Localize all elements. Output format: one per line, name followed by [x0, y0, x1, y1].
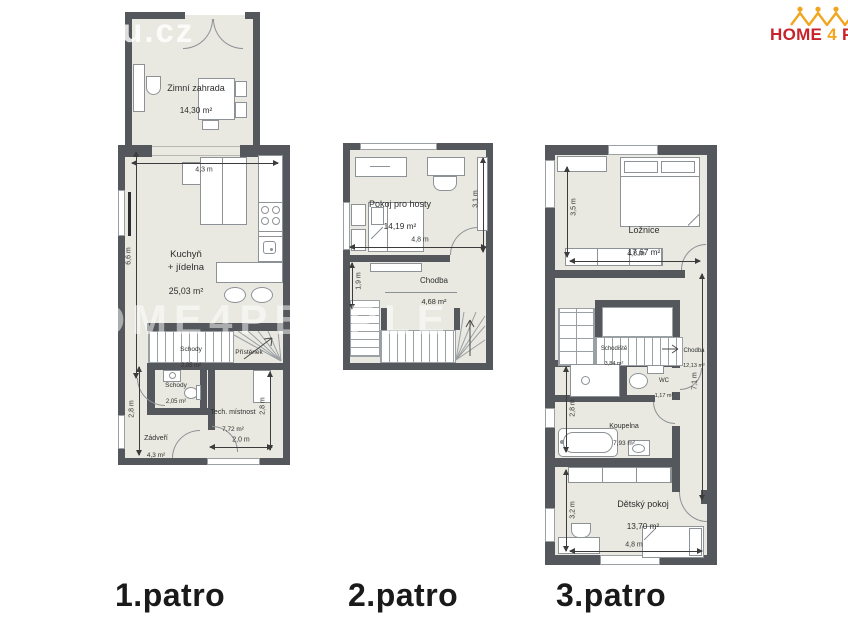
room-area: 1,17 m² — [655, 393, 674, 400]
toilet-tank — [196, 385, 201, 400]
floor-label-2: 2.patro — [348, 577, 458, 614]
dimension-line — [702, 274, 703, 500]
logo-home: HOME — [770, 25, 822, 44]
dimension-label: 3,1 m — [473, 190, 480, 208]
room-area: 14,19 m² — [369, 222, 431, 233]
wall — [125, 12, 132, 147]
room-label-wc: WC 1,17 m² — [655, 370, 674, 408]
burner — [272, 217, 280, 225]
dimension-line — [352, 263, 353, 309]
room-name: Ložnice — [628, 225, 661, 237]
room-name: Přístěnek — [235, 349, 262, 357]
room-label-kuchyn: Kuchyň + jídelna 25,03 m² — [168, 237, 204, 310]
dimension-label: 1,9 m — [356, 272, 363, 290]
wall — [595, 300, 680, 307]
dresser-handle — [370, 166, 390, 167]
window — [608, 145, 658, 155]
wall — [245, 12, 260, 19]
room-name: WC — [655, 378, 674, 386]
window — [118, 190, 125, 236]
chair — [146, 76, 161, 95]
room-name: Koupelna — [609, 422, 639, 431]
room-name: Schody — [165, 382, 187, 390]
window — [360, 143, 437, 150]
dimension-line — [570, 551, 702, 552]
room-area: 7,93 m² — [609, 440, 639, 448]
burner — [261, 206, 269, 214]
wall — [381, 308, 387, 330]
room-area: 12,13 m² — [683, 363, 705, 370]
room-area: 2,05 m² — [180, 363, 202, 371]
room-name: Zimní zahrada — [167, 83, 225, 95]
room-area: 3,84 m² — [601, 361, 627, 368]
blanket-line — [620, 176, 700, 177]
wardrobe — [568, 467, 672, 483]
room-name: Dětský pokoj — [617, 499, 669, 511]
nightstand — [351, 204, 366, 226]
room-area: 17,67 m² — [628, 248, 661, 259]
room-label-loznice: Ložnice 17,67 m² — [628, 213, 661, 271]
kitchen-peninsula — [216, 262, 283, 283]
wall — [707, 145, 717, 565]
sofa-armrest — [182, 162, 202, 185]
sideboard — [370, 263, 422, 272]
staircase-fan — [456, 312, 486, 363]
bar-stool — [251, 287, 273, 303]
dimension-line — [132, 163, 278, 164]
dresser — [355, 157, 407, 177]
window — [545, 508, 555, 542]
wall — [253, 12, 260, 147]
room-name: Schodiště — [601, 346, 627, 354]
staircase-treads — [380, 330, 456, 363]
opening-threshold — [152, 146, 240, 156]
stairwell-void — [602, 307, 673, 337]
room-label-schody-dolni: Schody 2,05 m² — [165, 374, 187, 416]
desk — [427, 157, 465, 176]
room-label-pokoj-pro-hosty: Pokoj pro hosty 14,19 m² — [369, 187, 431, 245]
room-area: 4,3 m² — [144, 452, 168, 460]
dimension-line — [210, 447, 272, 448]
room-label-chodba: Chodba 4,68 m² — [420, 266, 448, 317]
room-label-koupelna: Koupelna 7,93 m² — [609, 413, 639, 458]
burner — [261, 217, 269, 225]
room-label-pristenek: Přístěnek — [235, 341, 262, 366]
wall — [545, 270, 685, 278]
blanket-fold — [688, 214, 699, 226]
room-label-zadveri: Zádveří 4,3 m² — [144, 425, 168, 470]
room-name: Tech. místnost — [210, 408, 255, 417]
sofa-cushion-line — [222, 158, 223, 224]
floor-label-3: 3.patro — [556, 577, 666, 614]
washing-machine-door — [581, 376, 590, 385]
wall — [545, 458, 680, 467]
dimension-line — [350, 247, 486, 248]
room-name: Kuchyň + jídelna — [168, 249, 204, 274]
dimension-label: 2,8 m — [260, 397, 267, 415]
pillow — [661, 161, 695, 173]
room-area: 25,03 m² — [168, 286, 204, 297]
room-label-detsky-pokoj: Dětský pokoj 13,70 m² — [617, 487, 669, 545]
wall — [343, 255, 450, 262]
bathtub-faucet — [560, 440, 564, 444]
floor-label-1: 1.patro — [115, 577, 225, 614]
stairs-direction-arrow — [660, 342, 682, 356]
room-label-zimni-zahrada: Zimní zahrada 14,30 m² — [167, 71, 225, 129]
logo-people: PE — [842, 25, 848, 44]
dimension-line — [139, 367, 140, 455]
room-area: 14,30 m² — [167, 106, 225, 117]
wall — [545, 145, 555, 565]
crown-icon — [790, 6, 848, 26]
chair — [433, 176, 457, 191]
wall — [343, 363, 493, 370]
room-area: 13,70 m² — [617, 522, 669, 533]
chair — [571, 523, 591, 538]
room-name: Chodba — [683, 348, 705, 356]
dimension-label: 6,6 m — [126, 247, 133, 265]
room-label-schodiste: Schodiště 3,84 m² — [601, 338, 627, 376]
toilet-bowl — [629, 373, 648, 389]
radiator — [128, 192, 131, 236]
logo-four: 4 — [827, 25, 837, 44]
room-area: 7,72 m² — [210, 426, 255, 434]
logo-text: HOME 4 PE — [770, 25, 848, 45]
room-name: Schody — [180, 346, 202, 354]
dimension-line — [567, 167, 568, 257]
dimension-line — [483, 158, 484, 252]
window — [545, 408, 555, 428]
sink-drain — [270, 248, 273, 251]
room-area: 4,68 m² — [420, 297, 448, 307]
bar-stool — [224, 287, 246, 303]
wall — [125, 12, 185, 19]
wall — [147, 323, 283, 331]
chair — [235, 81, 247, 97]
window — [207, 458, 260, 465]
wall — [283, 145, 290, 465]
staircase-winders — [558, 308, 595, 366]
dimension-label: 3,5 m — [571, 198, 578, 216]
dimension-label: 3,2 m — [570, 501, 577, 519]
room-name: Chodba — [420, 276, 448, 286]
room-label-chodba: Chodba 12,13 m² — [683, 340, 705, 378]
chair — [235, 102, 247, 118]
dimension-label: 2,8 m — [570, 399, 577, 417]
room-name: Zádveří — [144, 434, 168, 443]
window — [545, 160, 555, 208]
window — [118, 415, 125, 449]
bathtub-basin — [563, 432, 613, 453]
room-label-tech-mistnost: Tech. místnost 7,72 m² — [210, 399, 255, 444]
dimension-label: 4,3 m — [195, 167, 213, 174]
burner — [272, 206, 280, 214]
dimension-label: 2,8 m — [129, 400, 136, 418]
dimension-line — [136, 152, 137, 378]
room-name: Pokoj pro hosty — [369, 199, 431, 211]
room-area: 2,05 m² — [165, 399, 187, 407]
floorplan-canvas: 4,3 m 6,6 m 2,8 m 2,8 m 2,0 m Zimní zahr… — [0, 0, 848, 636]
dimension-line — [566, 470, 567, 551]
desk — [133, 64, 145, 112]
dimension-line — [270, 372, 271, 450]
pillow — [624, 161, 658, 173]
dimension-line — [566, 367, 567, 452]
window — [343, 202, 350, 250]
